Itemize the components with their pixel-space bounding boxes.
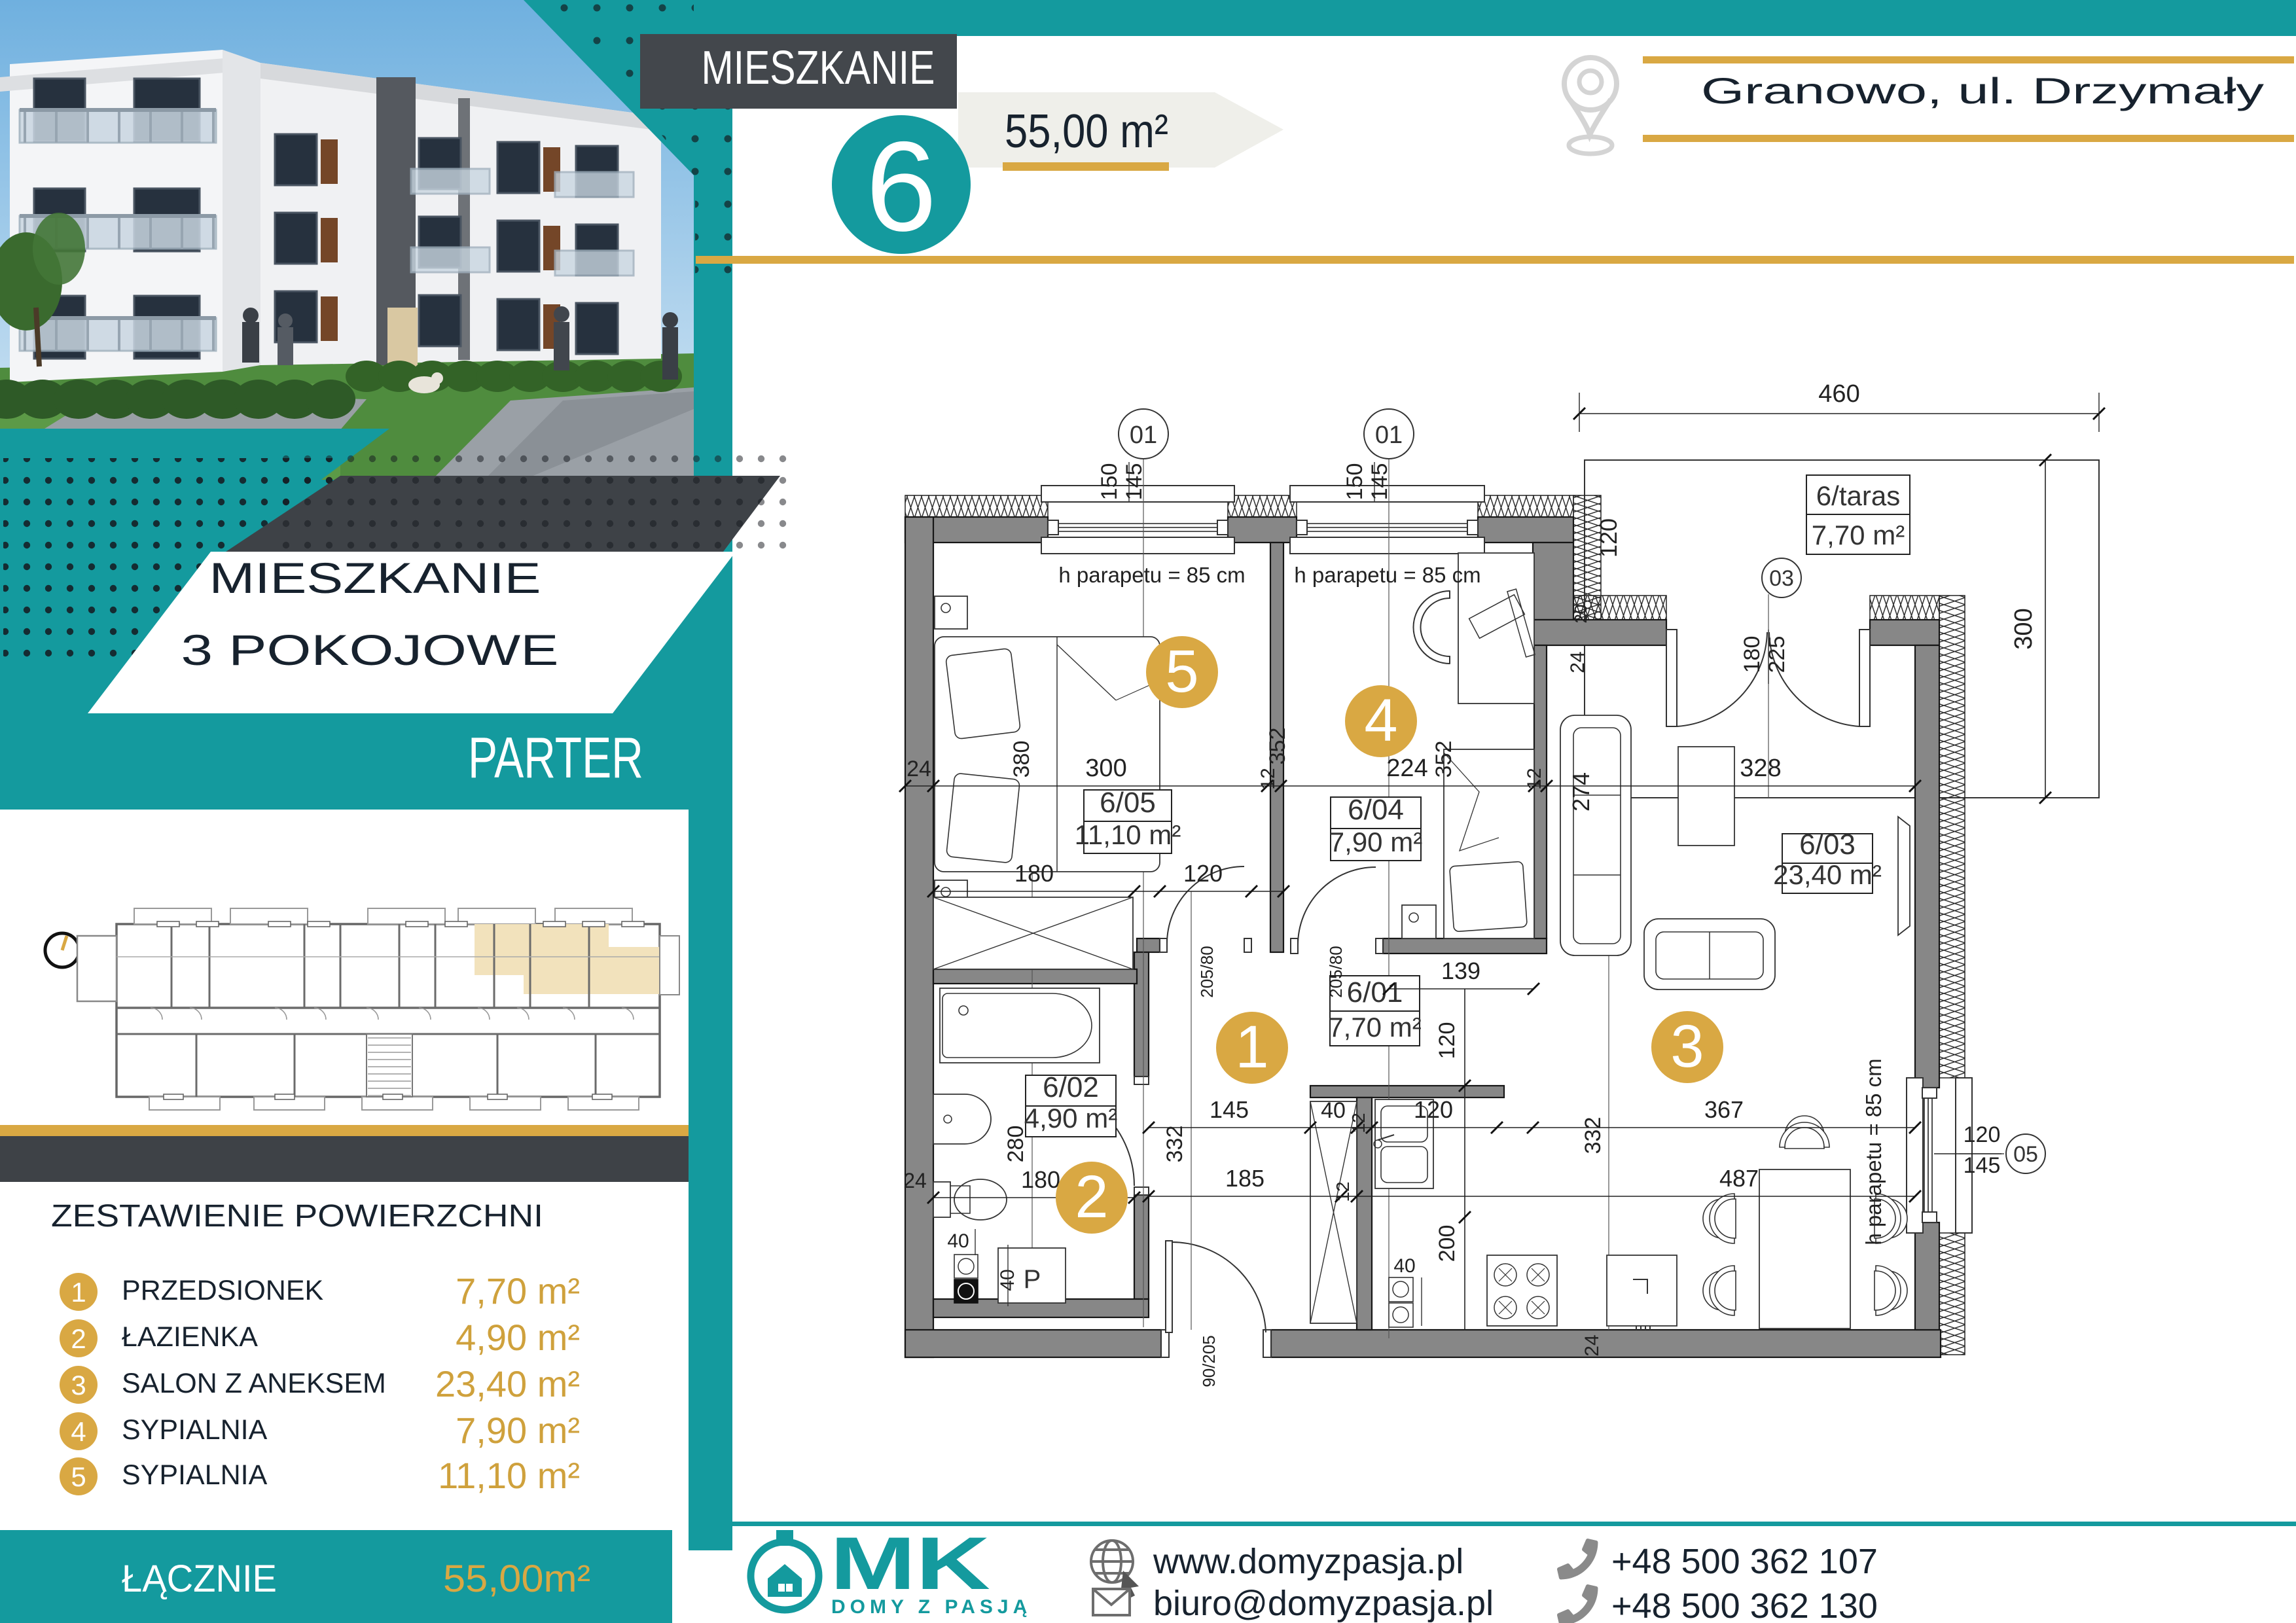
svg-text:12: 12 xyxy=(1333,1181,1353,1202)
svg-text:7,70 m²: 7,70 m² xyxy=(1328,1012,1421,1043)
svg-text:PARTER: PARTER xyxy=(468,725,643,790)
svg-text:01: 01 xyxy=(1130,421,1157,449)
svg-text:4,90 m²: 4,90 m² xyxy=(456,1317,580,1358)
svg-text:180: 180 xyxy=(1014,860,1054,887)
svg-text:6/04: 6/04 xyxy=(1348,794,1404,826)
svg-text:139: 139 xyxy=(1441,957,1480,984)
svg-text:SYPIALNIA: SYPIALNIA xyxy=(122,1414,268,1446)
svg-text:ŁAZIENKA: ŁAZIENKA xyxy=(122,1321,258,1353)
svg-text:6/05: 6/05 xyxy=(1100,787,1156,819)
svg-text:352: 352 xyxy=(1265,728,1290,765)
svg-text:6/taras: 6/taras xyxy=(1816,480,1900,511)
svg-text:SYPIALNIA: SYPIALNIA xyxy=(122,1459,268,1491)
svg-text:4: 4 xyxy=(1364,687,1397,754)
svg-text:23,40 m²: 23,40 m² xyxy=(435,1363,580,1404)
svg-text:3: 3 xyxy=(1670,1013,1704,1080)
svg-text:40: 40 xyxy=(947,1230,969,1252)
svg-text:24: 24 xyxy=(1567,651,1588,673)
svg-text:460: 460 xyxy=(1818,380,1859,408)
svg-text:3: 3 xyxy=(71,1370,86,1400)
svg-text:120: 120 xyxy=(1595,518,1622,558)
svg-text:332: 332 xyxy=(1162,1126,1187,1163)
svg-text:Granowo, ul. Drzymały: Granowo, ul. Drzymały xyxy=(1701,70,2264,111)
svg-text:1: 1 xyxy=(1235,1014,1268,1080)
svg-text:ŁĄCZNIE: ŁĄCZNIE xyxy=(122,1558,277,1600)
svg-text:20: 20 xyxy=(1571,605,1590,624)
svg-text:225: 225 xyxy=(1765,636,1789,673)
svg-text:23,40 m²: 23,40 m² xyxy=(1773,859,1882,890)
svg-text:352: 352 xyxy=(1431,741,1456,778)
svg-text:7,70 m²: 7,70 m² xyxy=(456,1270,580,1311)
svg-text:55,00 m²: 55,00 m² xyxy=(1005,105,1168,158)
svg-text:12: 12 xyxy=(1524,768,1545,789)
svg-text:145: 145 xyxy=(1122,463,1147,501)
svg-text:300: 300 xyxy=(2010,608,2037,649)
svg-text:biuro@domyzpasja.pl: biuro@domyzpasja.pl xyxy=(1153,1584,1494,1623)
svg-text:24: 24 xyxy=(906,757,931,781)
svg-text:05: 05 xyxy=(2013,1142,2038,1167)
svg-text:40: 40 xyxy=(1393,1255,1415,1277)
svg-text:150: 150 xyxy=(1097,463,1122,501)
svg-text:367: 367 xyxy=(1704,1096,1744,1123)
svg-text:24: 24 xyxy=(903,1169,927,1192)
svg-text:280: 280 xyxy=(1003,1126,1028,1163)
svg-text:205/80: 205/80 xyxy=(1197,946,1217,998)
svg-text:h parapetu = 85 cm: h parapetu = 85 cm xyxy=(1294,563,1480,587)
svg-text:205/80: 205/80 xyxy=(1326,946,1346,998)
svg-text:274: 274 xyxy=(1568,772,1594,811)
svg-text:6/01: 6/01 xyxy=(1347,976,1403,1008)
svg-text:120: 120 xyxy=(1414,1096,1453,1123)
svg-text:180: 180 xyxy=(1740,636,1765,673)
svg-text:SALON Z ANEKSEM: SALON Z ANEKSEM xyxy=(122,1368,386,1399)
svg-text:120: 120 xyxy=(1964,1122,2001,1147)
svg-text:185: 185 xyxy=(1225,1165,1265,1192)
svg-text:6: 6 xyxy=(866,115,937,258)
svg-text:11,10 m²: 11,10 m² xyxy=(1075,819,1181,850)
svg-text:3 POKOJOWE: 3 POKOJOWE xyxy=(181,626,559,674)
svg-text:6/02: 6/02 xyxy=(1043,1071,1099,1103)
svg-text:12: 12 xyxy=(1257,768,1279,789)
svg-text:224: 224 xyxy=(1386,755,1427,782)
svg-text:MIESZKANIE: MIESZKANIE xyxy=(209,554,541,602)
svg-text:2: 2 xyxy=(1075,1164,1108,1230)
svg-text:12: 12 xyxy=(1348,1113,1369,1133)
svg-text:4,90 m²: 4,90 m² xyxy=(1024,1103,1117,1133)
svg-text:328: 328 xyxy=(1740,755,1781,782)
svg-text:ZESTAWIENIE POWIERZCHNI: ZESTAWIENIE POWIERZCHNI xyxy=(51,1199,543,1234)
svg-text:4: 4 xyxy=(71,1416,86,1447)
svg-text:PRZEDSIONEK: PRZEDSIONEK xyxy=(122,1275,324,1306)
svg-text:145: 145 xyxy=(1210,1096,1249,1123)
svg-text:h parapetu = 85 cm: h parapetu = 85 cm xyxy=(1861,1058,1886,1245)
svg-text:180: 180 xyxy=(1021,1166,1060,1193)
svg-text:7,70 m²: 7,70 m² xyxy=(1812,520,1905,550)
svg-text:40: 40 xyxy=(1321,1098,1346,1123)
svg-text:2: 2 xyxy=(71,1323,86,1354)
svg-text:145: 145 xyxy=(1367,463,1392,501)
svg-text:6/03: 6/03 xyxy=(1799,829,1856,861)
svg-text:01: 01 xyxy=(1375,421,1403,449)
svg-text:DOMY Z PASJĄ: DOMY Z PASJĄ xyxy=(831,1596,1031,1618)
svg-text:+48 500 362 107: +48 500 362 107 xyxy=(1611,1542,1878,1581)
svg-text:MIESZKANIE: MIESZKANIE xyxy=(702,42,935,94)
svg-text:90/205: 90/205 xyxy=(1199,1335,1219,1387)
svg-text:120: 120 xyxy=(1435,1022,1460,1060)
svg-text:24: 24 xyxy=(1581,1334,1603,1356)
svg-text:150: 150 xyxy=(1342,463,1367,501)
svg-text:332: 332 xyxy=(1581,1117,1605,1154)
svg-text:5: 5 xyxy=(71,1461,86,1492)
svg-text:55,00m²: 55,00m² xyxy=(443,1558,590,1600)
svg-text:7,90 m²: 7,90 m² xyxy=(1329,827,1422,857)
svg-text:11,10 m²: 11,10 m² xyxy=(438,1455,580,1496)
svg-text:380: 380 xyxy=(1009,741,1034,778)
svg-text:www.domyzpasja.pl: www.domyzpasja.pl xyxy=(1153,1542,1463,1581)
svg-text:MK: MK xyxy=(830,1522,990,1605)
svg-text:h parapetu = 85 cm: h parapetu = 85 cm xyxy=(1058,563,1245,587)
svg-text:200: 200 xyxy=(1435,1225,1460,1262)
svg-text:120: 120 xyxy=(1183,860,1223,887)
svg-text:300: 300 xyxy=(1085,755,1126,782)
svg-text:145: 145 xyxy=(1964,1153,2001,1178)
svg-text:+48 500 362 130: +48 500 362 130 xyxy=(1611,1586,1878,1623)
svg-text:03: 03 xyxy=(1769,566,1794,591)
svg-text:5: 5 xyxy=(1165,638,1198,705)
svg-text:1: 1 xyxy=(71,1277,86,1308)
svg-text:487: 487 xyxy=(1719,1165,1759,1192)
svg-text:7,90 m²: 7,90 m² xyxy=(456,1410,580,1451)
svg-text:P: P xyxy=(1024,1265,1041,1294)
